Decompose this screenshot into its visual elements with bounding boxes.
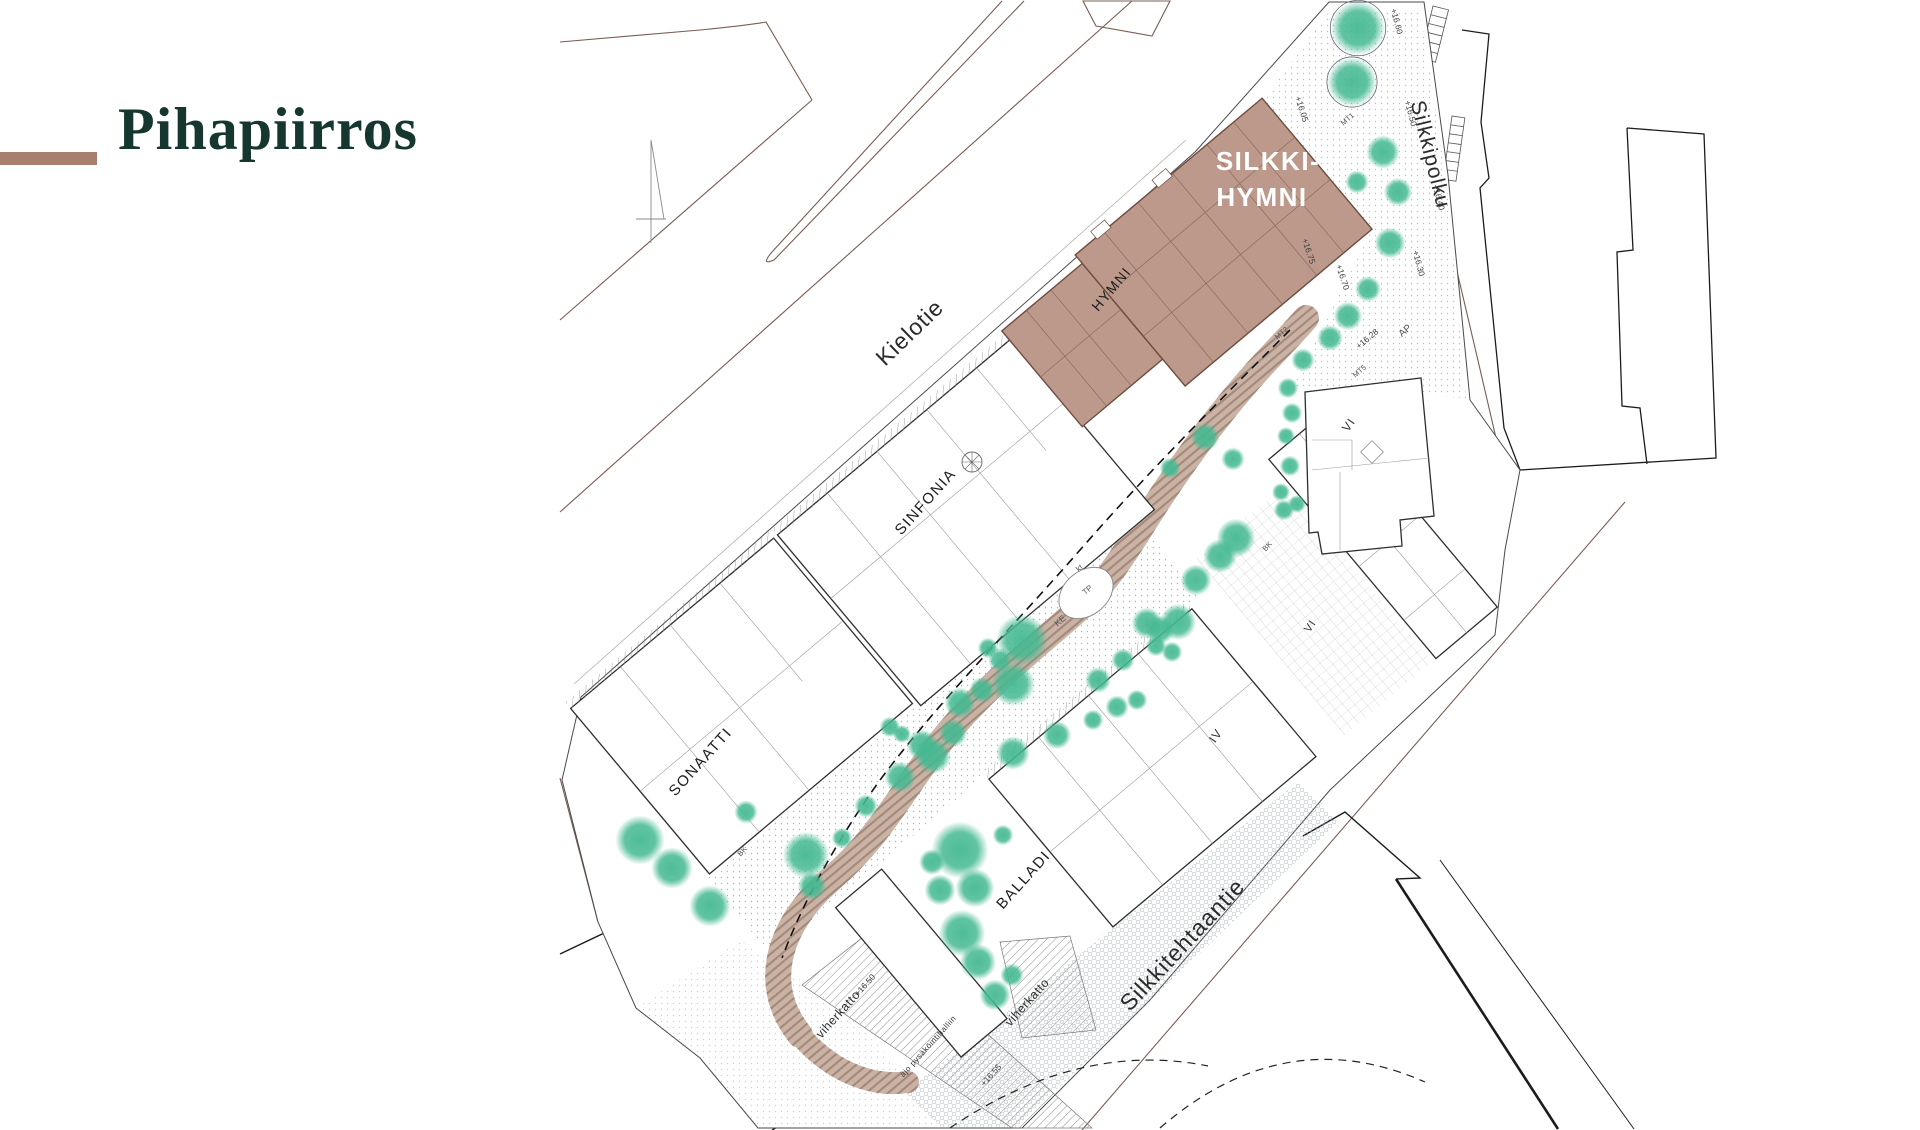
tree: [1334, 302, 1363, 331]
tree: [783, 832, 830, 879]
slide: Pihapiirros: [0, 0, 1920, 1130]
tree: [651, 847, 693, 889]
tree: [1043, 721, 1072, 750]
building-label-silkki-hymni: HYMNI: [1216, 182, 1307, 212]
street-label-kielotie: Kielotie: [870, 294, 948, 371]
tree: [1191, 423, 1220, 452]
tree: [1203, 539, 1237, 573]
tree: [988, 648, 1011, 671]
tree: [1288, 495, 1306, 513]
tree: [956, 869, 995, 908]
building-label-silkki-hymni: SILKKI-: [1216, 146, 1320, 176]
tree: [798, 872, 827, 901]
tree: [1327, 57, 1376, 106]
tree: [996, 736, 1030, 770]
tree: [1331, 1, 1386, 56]
tree: [884, 761, 915, 792]
tree: [924, 874, 955, 905]
tree: [1282, 403, 1303, 424]
tree: [1317, 325, 1343, 351]
tree: [944, 687, 975, 718]
tree: [1384, 178, 1413, 207]
tree: [1111, 648, 1134, 671]
neighbor-outline-se: [1440, 860, 1634, 1129]
tree: [880, 717, 901, 738]
tree: [1355, 276, 1381, 302]
tree: [1105, 695, 1128, 718]
tree: [960, 944, 996, 980]
tree: [1083, 710, 1104, 731]
tree: [1180, 564, 1211, 595]
tree: [854, 794, 877, 817]
tree: [832, 828, 853, 849]
tree: [1146, 636, 1167, 657]
neighbor-outline-se: [1396, 879, 1558, 1129]
tree: [1366, 135, 1400, 169]
tree: [1278, 378, 1299, 399]
site-plan: KielotieSilkkipolkuSilkkitehtaantieSILKK…: [0, 0, 1920, 1130]
tree: [993, 825, 1014, 846]
spiral-stair: [962, 452, 982, 472]
tree: [1272, 483, 1290, 501]
tree: [1131, 607, 1162, 638]
tree: [1127, 690, 1148, 711]
tree: [1277, 427, 1295, 445]
tree: [919, 849, 945, 875]
road-edge: [560, 100, 812, 320]
tree: [1280, 456, 1301, 477]
tree: [1160, 458, 1181, 479]
road-edge: [560, 22, 812, 100]
guide-dashed-arc: [1160, 1059, 1425, 1128]
tree: [1345, 170, 1368, 193]
tree: [1085, 667, 1111, 693]
tree: [1374, 227, 1405, 258]
tree: [1221, 447, 1244, 470]
survey-mark: [636, 140, 666, 243]
tree: [1000, 963, 1023, 986]
tree: [689, 885, 731, 927]
neighbor-outline-ne: [1462, 30, 1716, 470]
tree: [734, 800, 757, 823]
tree: [1291, 348, 1314, 371]
